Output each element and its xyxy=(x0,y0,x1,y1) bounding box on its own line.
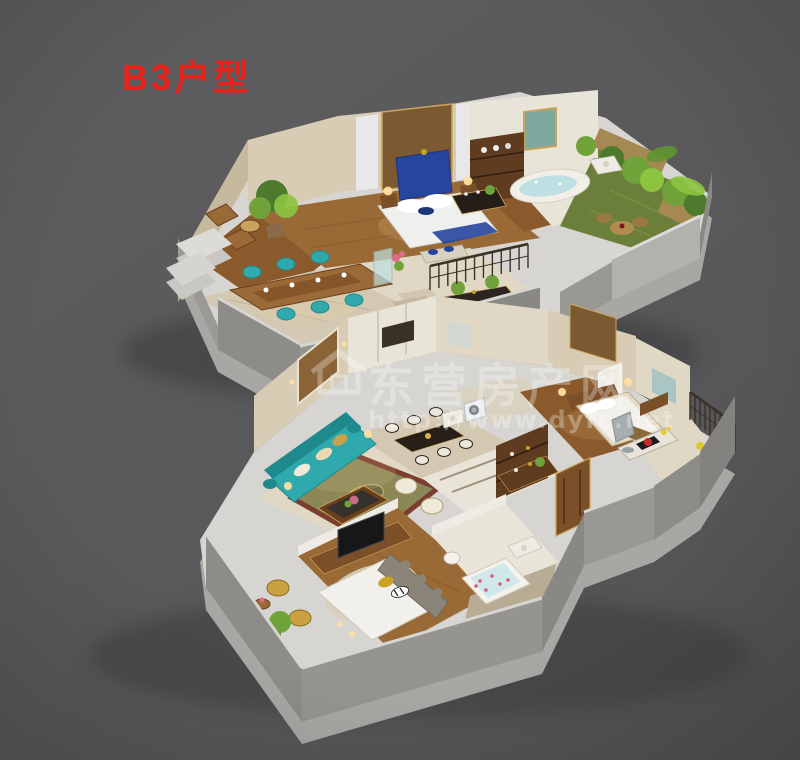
floorplan-render: 东营房产网 http://www.dyfc.net B3户型 xyxy=(0,0,800,760)
watermark-site-name: 东营房产网 xyxy=(368,359,633,413)
watermark-url: http://www.dyfc.net xyxy=(368,406,676,434)
unit-title: B3户型 xyxy=(122,57,252,98)
screenshot-root: 东营房产网 http://www.dyfc.net B3户型 xyxy=(0,0,800,760)
